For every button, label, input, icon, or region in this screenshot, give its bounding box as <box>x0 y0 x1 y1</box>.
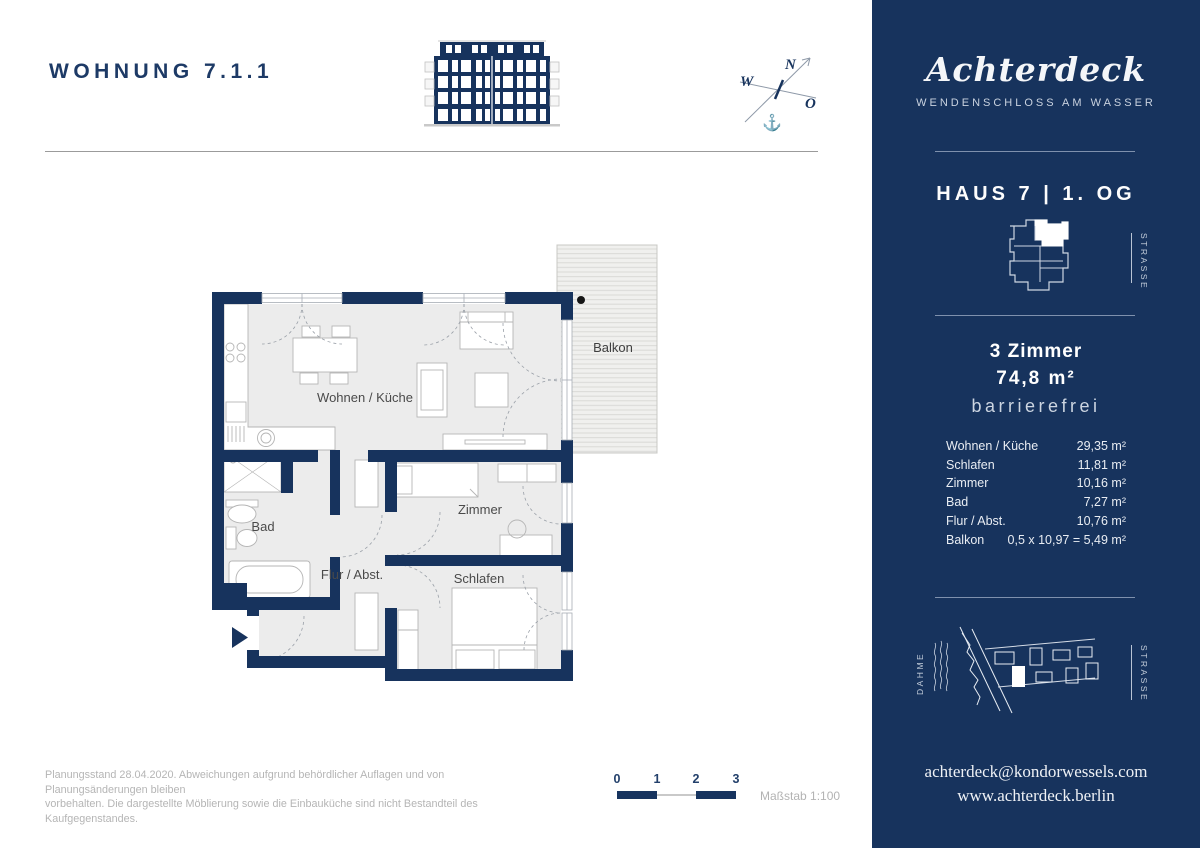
water-waves-icon <box>934 641 947 691</box>
table-row: Bad 7,27 m² <box>946 493 1126 512</box>
scale-segment-dark-2 <box>696 791 736 799</box>
disclaimer-text: Planungsstand 28.04.2020. Abweichungen a… <box>45 768 535 826</box>
contact-website-link[interactable]: www.achterdeck.berlin <box>872 786 1200 806</box>
room-label-living: Wohnen / Küche <box>317 390 413 405</box>
entrance-arrow-icon <box>232 627 248 648</box>
area-label: Schlafen <box>946 456 995 475</box>
brand-logo: Achterdeck <box>872 50 1200 89</box>
summary-feature: barrierefrei <box>872 396 1200 417</box>
compass-west-label: W <box>740 74 755 90</box>
room-label-bad: Bad <box>251 519 274 534</box>
building-elevation-illustration <box>424 36 560 130</box>
unit-locator-map <box>990 213 1082 301</box>
scale-segment-light <box>657 794 696 796</box>
room-label-flur: Flur / Abst. <box>321 567 383 582</box>
sidebar-divider-2 <box>935 315 1135 316</box>
room-area-table: Wohnen / Küche 29,35 m² Schlafen 11,81 m… <box>946 437 1126 549</box>
compass-north-label: N <box>784 57 797 73</box>
area-value: 0,5 x 10,97 = 5,49 m² <box>1008 531 1126 550</box>
main-panel: WOHNUNG 7.1.1 <box>0 0 872 848</box>
area-value: 11,81 m² <box>1078 456 1126 475</box>
room-label-zimmer: Zimmer <box>458 502 503 517</box>
scale-segment-dark-1 <box>617 791 657 799</box>
site-plan-map: DAHME <box>890 625 1140 720</box>
brand-tagline: WENDENSCHLOSS AM WASSER <box>872 97 1200 109</box>
scale-tick-1: 1 <box>649 772 665 786</box>
header-divider <box>45 151 818 152</box>
table-row: Wohnen / Küche 29,35 m² <box>946 437 1126 456</box>
area-value: 10,76 m² <box>1077 512 1126 531</box>
floorplan-sheet: WOHNUNG 7.1.1 <box>0 0 1200 848</box>
shoreline <box>960 627 1012 713</box>
site-building-highlight <box>1012 666 1025 687</box>
area-value: 29,35 m² <box>1077 437 1126 456</box>
locator-street-label: STRASSE <box>1139 233 1149 285</box>
scale-label: Maßstab 1:100 <box>760 789 840 803</box>
river-label: DAHME <box>915 652 925 695</box>
sidebar-panel <box>872 0 1200 848</box>
summary-area: 74,8 m² <box>872 368 1200 390</box>
unit-highlight <box>1035 220 1068 246</box>
anchor-icon: ⚓ <box>762 113 782 132</box>
page-title: WOHNUNG 7.1.1 <box>49 60 273 84</box>
table-row: Flur / Abst. 10,76 m² <box>946 512 1126 531</box>
compass-east-label: O <box>805 96 816 112</box>
sidebar-divider-3 <box>935 597 1135 598</box>
area-label: Zimmer <box>946 474 988 493</box>
sidebar-divider-1 <box>935 151 1135 152</box>
balcony-marker-dot <box>577 296 585 304</box>
contact-email-link[interactable]: achterdeck@kondorwessels.com <box>872 762 1200 782</box>
scale-tick-2: 2 <box>688 772 704 786</box>
room-label-schlafen: Schlafen <box>454 571 505 586</box>
table-row: Zimmer 10,16 m² <box>946 474 1126 493</box>
summary-rooms: 3 Zimmer <box>872 341 1200 363</box>
area-label: Balkon <box>946 531 984 550</box>
room-label-balkon: Balkon <box>593 340 633 355</box>
scale-tick-0: 0 <box>609 772 625 786</box>
area-label: Wohnen / Küche <box>946 437 1038 456</box>
compass-icon: N W O ⚓ <box>728 42 828 134</box>
scale-tick-3: 3 <box>728 772 744 786</box>
siteplan-street-label: STRASSE <box>1139 645 1149 702</box>
table-row: Balkon 0,5 x 10,97 = 5,49 m² <box>946 531 1126 550</box>
table-row: Schlafen 11,81 m² <box>946 456 1126 475</box>
siteplan-street-line <box>1131 645 1132 700</box>
area-value: 10,16 m² <box>1077 474 1126 493</box>
unit-title: HAUS 7 | 1. OG <box>872 183 1200 206</box>
site-buildings <box>995 647 1098 683</box>
area-label: Bad <box>946 493 968 512</box>
area-value: 7,27 m² <box>1084 493 1126 512</box>
locator-street-line <box>1131 233 1132 283</box>
floorplan-drawing: Wohnen / Küche Bad Flur / Abst. Zimmer S… <box>190 230 680 690</box>
area-label: Flur / Abst. <box>946 512 1006 531</box>
